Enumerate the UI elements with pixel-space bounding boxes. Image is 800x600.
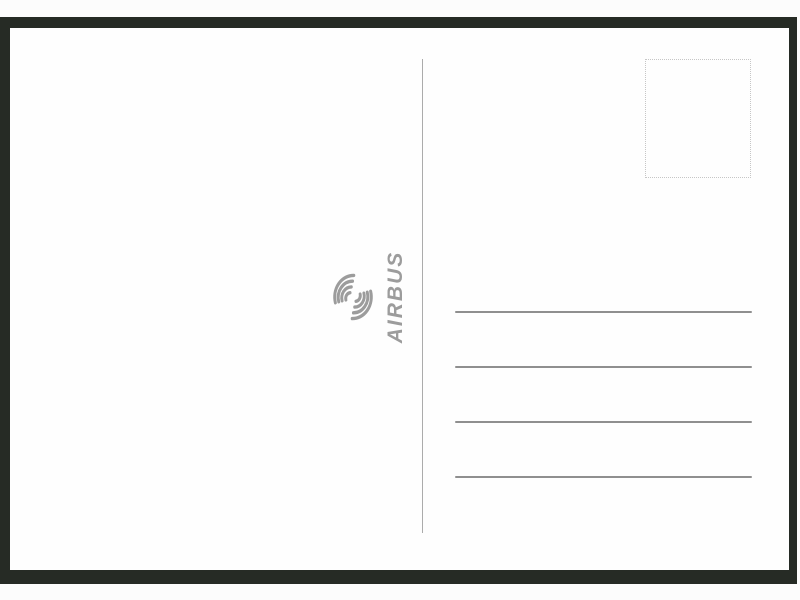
address-line xyxy=(455,476,752,478)
address-lines xyxy=(455,311,752,478)
address-line xyxy=(455,366,752,368)
address-line xyxy=(455,311,752,313)
dark-mat: AIRBUS xyxy=(0,17,797,584)
postcard-back: AIRBUS xyxy=(10,28,789,570)
airbus-swirl-icon xyxy=(332,273,374,321)
center-divider xyxy=(422,59,423,533)
scan-page: AIRBUS xyxy=(0,0,800,600)
stamp-placeholder-box xyxy=(645,59,751,178)
brand-wordmark: AIRBUS xyxy=(384,251,408,344)
address-line xyxy=(455,421,752,423)
